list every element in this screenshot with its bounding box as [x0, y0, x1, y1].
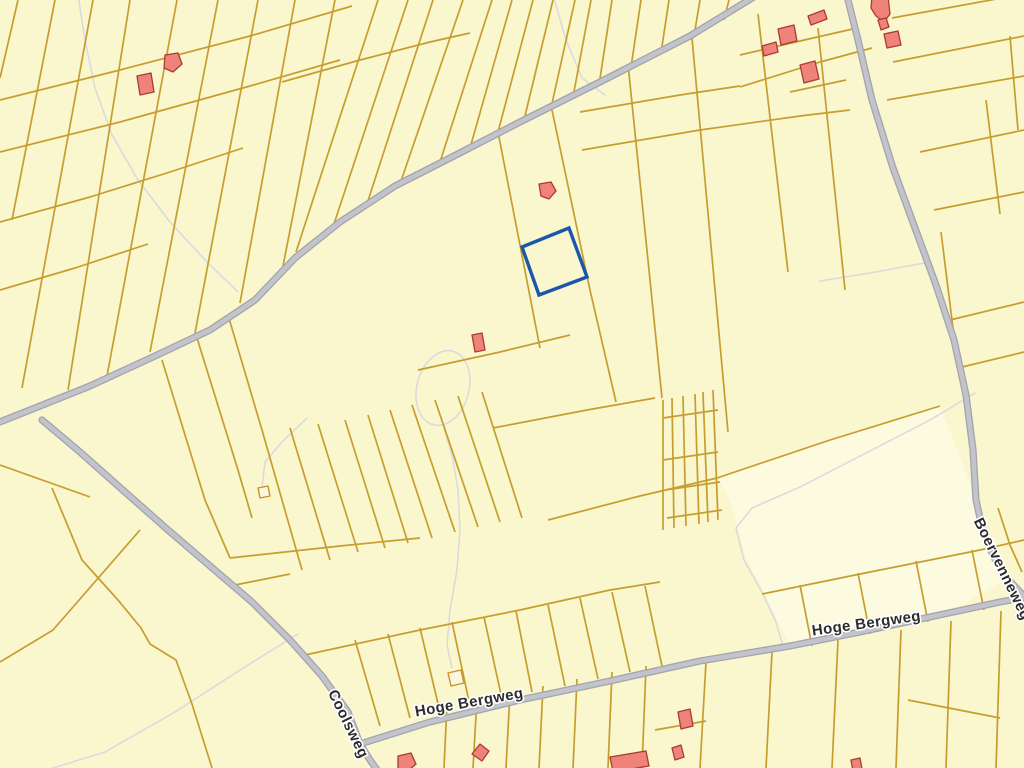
outlined-building [258, 486, 270, 498]
outlined-building [448, 670, 464, 686]
building [472, 333, 485, 352]
building [678, 709, 693, 729]
map-canvas[interactable]: Hoge BergwegHoge BergwegCoolswegBoervenn… [0, 0, 1024, 768]
building [884, 31, 901, 48]
building [672, 745, 684, 760]
building [137, 73, 154, 95]
map-viewport[interactable]: Hoge BergwegHoge BergwegCoolswegBoervenn… [0, 0, 1024, 768]
building [778, 25, 797, 45]
building [800, 61, 819, 83]
map-background [0, 0, 1024, 768]
building [851, 758, 862, 768]
